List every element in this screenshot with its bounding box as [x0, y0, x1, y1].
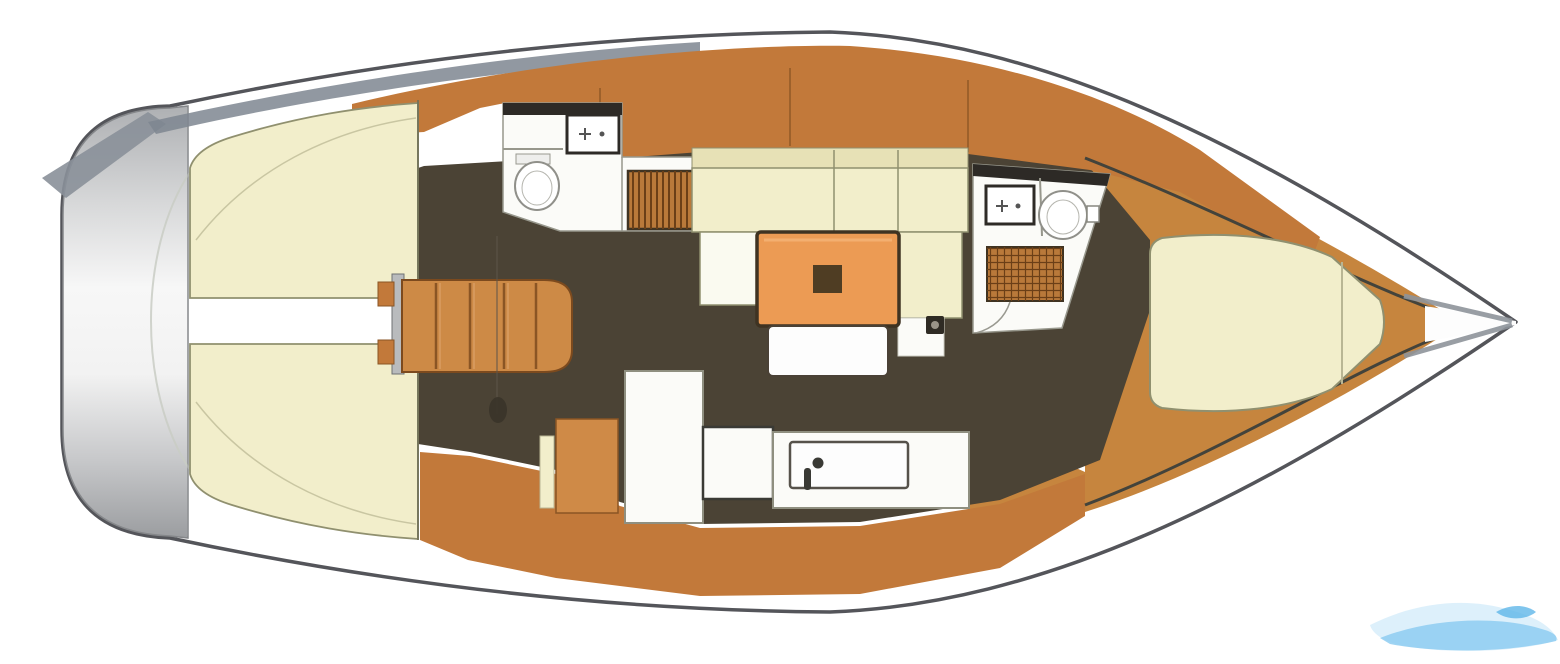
- galley-counter-small: [703, 427, 773, 499]
- salon-settee-right-return: [898, 232, 962, 318]
- companionway-frame-nub-bottom: [378, 340, 394, 364]
- salon-bench: [768, 326, 888, 376]
- galley-faucet-handle: [804, 468, 811, 490]
- aft-head-shower-grate-slats: [628, 171, 694, 229]
- boat-floorplan-page: [0, 0, 1560, 664]
- mast-post-center: [931, 321, 939, 329]
- galley-fridge: [625, 371, 703, 523]
- aft-head-sink: [567, 115, 619, 153]
- boat-floorplan: [0, 0, 1560, 664]
- watermark-wave: [1370, 603, 1558, 651]
- salon-settee-seat: [692, 168, 968, 232]
- galley-cream-sliver: [540, 436, 554, 508]
- fwd-head-toilet: [1039, 191, 1087, 239]
- fwd-head-shower-grate-grid: [987, 247, 1063, 301]
- salon-settee-backrest: [692, 148, 968, 170]
- keel-post: [489, 397, 507, 423]
- galley-faucet: [813, 458, 824, 469]
- companionway-stairs: [402, 280, 572, 372]
- salon-table-inset: [813, 265, 842, 293]
- salon-settee-left-return: [700, 232, 760, 305]
- aft-head-top-locker: [503, 103, 622, 115]
- companionway-frame-nub-top: [378, 282, 394, 306]
- fwd-head-sink: [986, 186, 1034, 224]
- galley-cabinet: [556, 419, 618, 513]
- fwd-head-toilet-control: [1087, 206, 1099, 222]
